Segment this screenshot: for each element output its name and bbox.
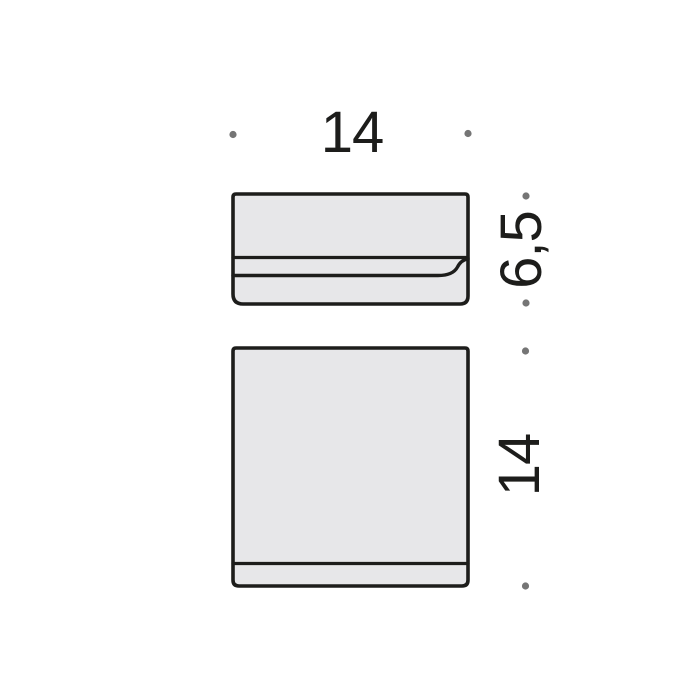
side-view-outline [233,194,468,304]
front-view [233,348,468,586]
front-view-outline [233,348,468,586]
side-height-dot-bottom-icon [522,299,529,306]
width-dot-left-icon [229,131,236,138]
dimension-label-side-height: 6,5 [489,211,554,289]
side-view [233,194,468,304]
dimension-label-width: 14 [321,100,384,165]
front-height-dot-bottom-icon [522,582,529,589]
side-height-dot-top-icon [522,192,529,199]
width-dot-right-icon [464,130,471,137]
front-height-dot-top-icon [522,347,529,354]
dimension-label-front-height: 14 [487,434,552,497]
dimension-drawing: 14 6,5 14 [0,0,700,700]
dimension-drawing-page: 14 6,5 14 [0,0,700,700]
